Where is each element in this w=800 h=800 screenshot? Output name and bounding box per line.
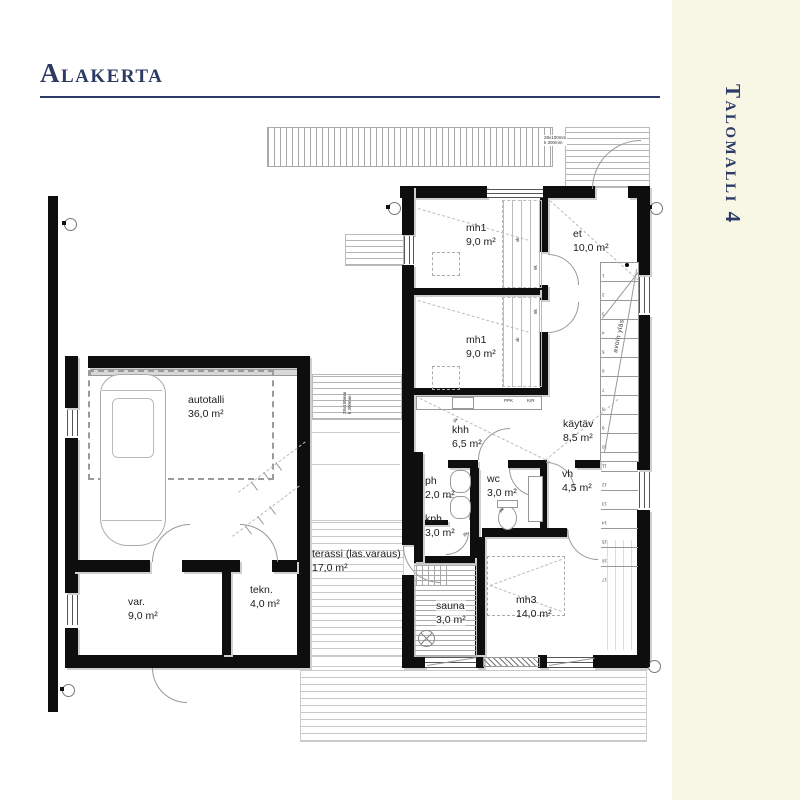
sink [452,397,474,409]
room-label-autotalli: autotalli 36,0 m² [188,394,224,421]
room-name: vh [562,468,592,482]
stair-tread: 17 [601,567,638,585]
room-area: 36,0 m² [188,408,224,422]
room-name: mh1 [466,334,496,348]
window [639,472,650,508]
wall [482,528,567,537]
annotation-tick [269,506,276,515]
floorplan-page: Alakerta Talomalli 4 28x100mm k 300mm 28… [0,0,800,800]
title-rule [40,96,660,98]
door-swing [478,428,510,460]
annotation-tick [275,462,282,471]
dishwasher-label: PPK [504,398,513,403]
room-name: var. [128,596,158,610]
annotation-tick [251,482,258,491]
sauna-stove [418,630,435,647]
room-name: mh1 [466,222,496,236]
section-marker [62,684,75,697]
wall [508,460,543,468]
wall [65,356,78,408]
wall [222,572,231,655]
room-name: kph [425,513,455,527]
site-fence [48,196,58,712]
stair-start-dot [625,263,629,267]
wall [65,655,310,668]
room-label-mh1b: mh1 9,0 m² [466,334,496,361]
bottom-deck [300,666,647,742]
walkway-line [312,464,400,465]
room-name: ph [425,475,455,489]
car-hood-line [102,390,162,391]
room-label-var: var. 9,0 m² [128,596,158,623]
room-label-terassi: terassi (las.varaus) 17,0 m² [312,548,401,575]
room-label-kph: kph 3,0 m² [425,513,455,540]
room-area: 3,0 m² [487,487,517,501]
room-area: 4,5 m² [562,482,592,496]
window-sill [483,657,540,667]
wall [88,356,310,368]
walkway-spec-note: 28x100mm k 300mm [342,392,353,414]
window [67,410,78,436]
stair-tread: 12 [601,472,638,491]
room-label-wc: wc 3,0 m² [487,473,517,500]
room-label-vh: vh 4,5 m² [562,468,592,495]
room-name: sauna [436,600,466,614]
room-name: käytäv [563,418,593,432]
window [487,189,543,198]
stair-tread: 13 [601,491,638,510]
furniture-dashed [432,366,460,390]
room-area: 9,0 m² [466,236,496,250]
room-area: 17,0 m² [312,562,401,576]
room-label-tekn: tekn. 4,0 m² [250,584,280,611]
khh-counter [416,396,542,410]
section-marker [64,218,77,231]
door-swing [240,524,278,562]
stair-tread: 16 [601,548,638,567]
car-cabin [112,398,154,458]
stoop-hatch [345,234,404,266]
walkway-spec-line2: k 300mm [347,392,352,414]
room-name: tekn. [250,584,280,598]
door-mark: 8k [533,309,538,314]
window [404,236,414,264]
door-swing [152,668,187,703]
section-marker [388,202,401,215]
room-area: 3,0 m² [425,527,455,541]
diagonal-annotation [232,485,300,536]
pergola-hatch [267,127,553,167]
room-label-et: et 10,0 m² [573,228,609,255]
stair-tread: 11 [601,453,638,472]
door-swing [567,529,598,560]
annotation-tick [257,516,264,525]
wall [73,560,150,572]
stair-tread: 15 [601,529,638,548]
wall [637,510,650,668]
walkway-hatch [312,374,402,420]
room-area: 6,5 m² [452,438,482,452]
deck-spec-note: 28x100mm k 300mm [543,135,567,146]
room-name: et [573,228,609,242]
wall [593,655,650,668]
section-marker [648,660,661,673]
door-swing [548,254,579,285]
model-label: Talomalli 4 [720,84,745,225]
room-name: terassi (las.varaus) [312,548,401,562]
stair-tread: 14 [601,510,638,529]
room-area: 8,5 m² [563,432,593,446]
room-area: 9,0 m² [128,610,158,624]
car-rear-line [102,520,162,521]
room-label-ph: ph 2,0 m² [425,475,455,502]
walkway-line [312,432,400,433]
wall [414,288,540,295]
room-label-mh1a: mh1 9,0 m² [466,222,496,249]
wall [402,186,414,235]
door-swing [548,302,579,333]
furniture-dashed [432,252,460,276]
page-title: Alakerta [40,58,163,89]
room-area: 14,0 m² [516,608,552,622]
wall [182,560,240,572]
door-mark: 9k [533,265,538,270]
room-name: autotalli [188,394,224,408]
sauna-step-hatch [416,565,448,585]
room-label-mh3: mh3 14,0 m² [516,594,552,621]
terassi-deck [310,520,404,657]
wall [402,265,414,545]
wardrobe-strip [502,200,542,288]
wall [543,186,595,198]
window [67,595,78,625]
stair-tread: 8 [601,396,638,415]
room-area: 4,0 m² [250,598,280,612]
washbasin-cabinet [528,476,543,522]
window [639,277,650,313]
room-name: wc [487,473,517,487]
room-area: 10,0 m² [573,242,609,256]
room-name: mh3 [516,594,552,608]
fridge-label: K/R [527,398,535,403]
room-area: 2,0 m² [425,489,455,503]
section-marker [650,202,663,215]
wall [297,356,310,668]
room-label-sauna: sauna 3,0 m² [436,600,466,627]
wardrobe-mark: sk [515,338,520,343]
wall [575,460,600,468]
room-label-kaytav: käytäv 8,5 m² [563,418,593,445]
room-name: khh [452,424,482,438]
room-area: 9,0 m² [466,348,496,362]
room-label-khh: khh 6,5 m² [452,424,482,451]
deck-spec-line2: k 300mm [544,140,566,145]
room-area: 3,0 m² [436,614,466,628]
stair-tread: 7 [601,377,638,396]
wall [448,460,478,468]
